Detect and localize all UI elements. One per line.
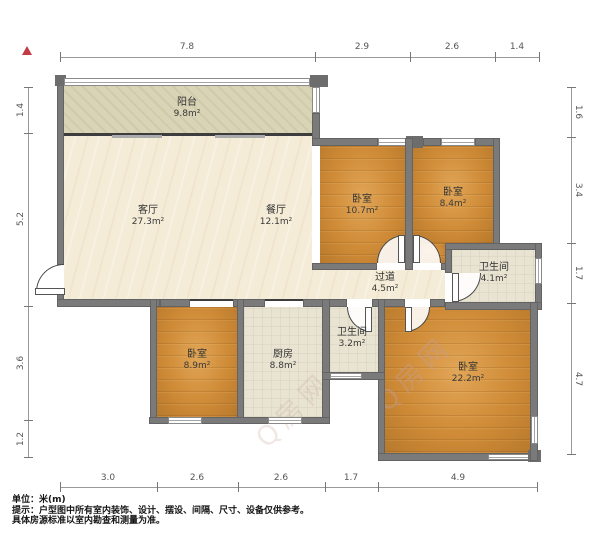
window (441, 138, 475, 146)
dim-tick (24, 133, 33, 134)
dim-tick (315, 52, 316, 62)
dim-tick (567, 454, 576, 455)
room-label-bedroom-top-right: 卧室 8.4m² (440, 187, 467, 210)
wall-segment (445, 243, 542, 250)
dim-label: 3.6 (16, 356, 26, 370)
dim-tick (24, 87, 33, 88)
dim-label: 1.4 (16, 103, 26, 117)
wall-segment (312, 138, 378, 146)
dim-tick (495, 52, 496, 62)
wall-segment (150, 299, 157, 424)
dim-tick (60, 482, 61, 492)
door-leaf (452, 273, 459, 302)
wall-segment (237, 299, 244, 424)
dim-label: 4.7 (573, 372, 583, 386)
dim-label: 2.9 (355, 42, 369, 52)
wall-segment (312, 263, 377, 270)
wall-segment (445, 302, 542, 310)
dim-tick (24, 457, 33, 458)
disclaimer-line-1: 提示：户型图中所有室内装饰、设计、摆设、间隔、尺寸、设备仅供参考。 (12, 506, 309, 517)
dim-tick (24, 420, 33, 421)
dim-label: 1.7 (344, 473, 358, 483)
disclaimer-line-2: 具体房源标准以室内勘查和测量为准。 (12, 516, 309, 527)
dim-tick (378, 482, 379, 492)
window (535, 258, 542, 284)
dim-label: 7.8 (180, 42, 194, 52)
room-label-corridor: 过道 4.5m² (372, 272, 399, 295)
window (330, 373, 362, 379)
wall-segment (430, 299, 445, 307)
dim-tick (60, 52, 61, 62)
dim-tick (537, 482, 538, 492)
room-label-balcony: 阳台 9.8m² (174, 97, 201, 120)
footer-notes: 单位：米(m) 提示：户型图中所有室内装饰、设计、摆设、间隔、尺寸、设备仅供参考… (12, 495, 309, 527)
wall-segment (57, 77, 64, 265)
sliding-door-panel (112, 135, 162, 138)
wall-segment (493, 138, 500, 250)
dim-label: 1.4 (510, 42, 524, 52)
dim-tick (238, 482, 239, 492)
dim-label: 3.4 (573, 183, 583, 197)
room-label-bedroom-top-mid: 卧室 10.7m² (346, 194, 378, 217)
dim-tick (567, 87, 576, 88)
dim-tick (325, 482, 326, 492)
room-label-kitchen: 厨房 8.8m² (270, 349, 297, 372)
wall-segment (378, 299, 385, 461)
dimension-line-bottom (60, 487, 538, 488)
dim-label: 1.2 (16, 432, 26, 446)
room-label-bedroom-master: 卧室 22.2m² (452, 362, 484, 385)
sliding-door-panel (215, 135, 265, 138)
door-leaf (413, 235, 420, 263)
dim-tick (410, 52, 411, 62)
dim-tick (157, 482, 158, 492)
wall-segment (57, 299, 160, 307)
wall-segment (322, 299, 330, 424)
north-arrow-icon (22, 46, 32, 55)
window (488, 454, 532, 460)
wall-segment (372, 299, 405, 307)
room-label-living: 客厅 27.3m² (132, 205, 164, 228)
dimension-line-left (28, 87, 29, 458)
wall-segment (405, 138, 413, 270)
floor-plan: Q房网 Q房网 (0, 0, 600, 545)
dim-label: 4.9 (451, 473, 465, 483)
door-leaf (405, 307, 412, 332)
window (268, 417, 302, 424)
wall-segment (423, 138, 441, 146)
doorway-opening (190, 299, 233, 307)
entrance-door-leaf (35, 288, 65, 295)
dim-tick (567, 303, 576, 304)
door-leaf (398, 235, 405, 263)
dim-label: 2.6 (190, 473, 204, 483)
room-label-bedroom-bottom-left: 卧室 8.9m² (184, 349, 211, 372)
window (168, 417, 202, 424)
dim-label: 5.2 (16, 212, 26, 226)
dim-label: 2.6 (445, 42, 459, 52)
dim-label: 2.6 (274, 473, 288, 483)
dim-label: 3.0 (101, 473, 115, 483)
room-label-bathroom-right: 卫生间 4.1m² (479, 262, 509, 285)
window (378, 138, 406, 146)
window (531, 416, 538, 444)
doorway-opening (265, 299, 303, 307)
dim-tick (567, 243, 576, 244)
room-label-dining: 餐厅 12.1m² (260, 205, 292, 228)
wall-segment (160, 299, 190, 307)
room-label-bathroom-mid: 卫生间 3.2m² (337, 327, 367, 350)
window (64, 78, 310, 86)
window (312, 87, 320, 113)
dim-label: 1.6 (573, 105, 583, 119)
dimension-line-top (60, 57, 540, 58)
dim-tick (567, 137, 576, 138)
unit-note: 单位：米(m) (12, 495, 309, 506)
wall-corner-block (310, 75, 328, 87)
dim-label: 1.7 (573, 266, 583, 280)
sliding-door (64, 133, 312, 136)
dimension-line-right (571, 87, 572, 455)
dim-tick (24, 306, 33, 307)
dim-tick (539, 52, 540, 62)
